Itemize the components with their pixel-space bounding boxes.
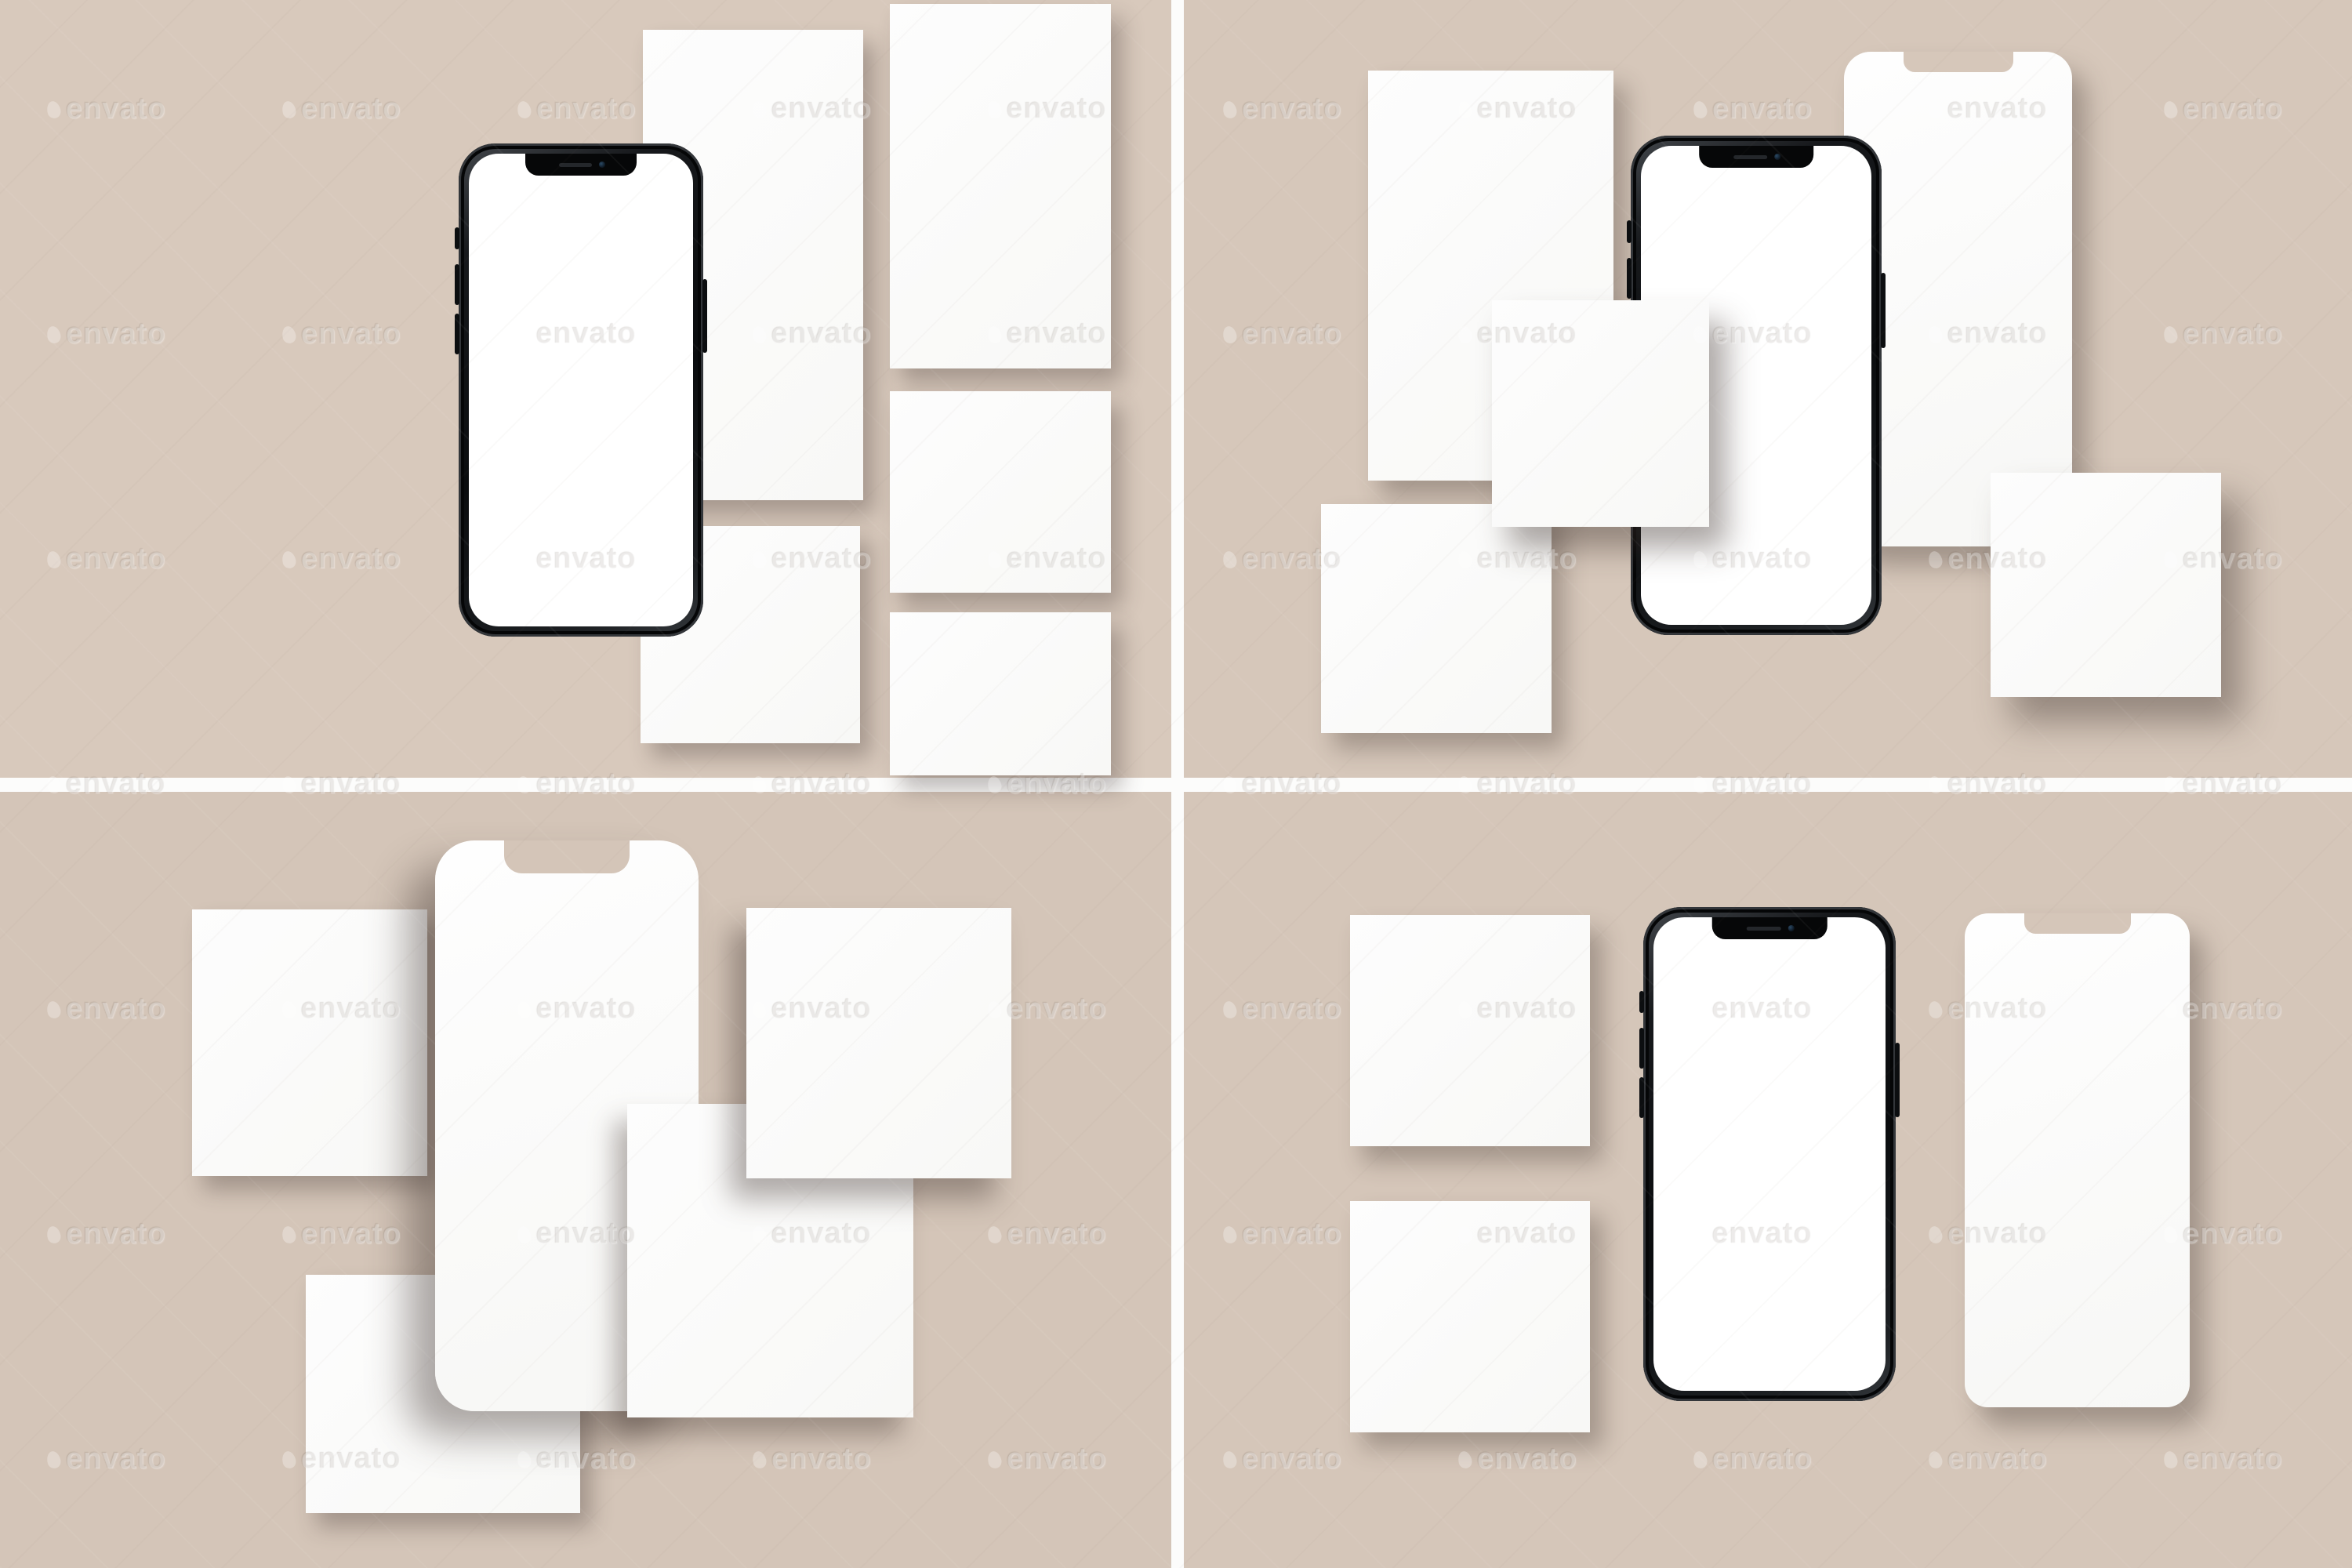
mute-button <box>1627 220 1632 243</box>
phone-notch <box>525 154 637 176</box>
phone-screen <box>469 154 693 626</box>
vol_dn-button <box>1639 1077 1644 1118</box>
power-button <box>702 279 707 353</box>
blank-card-square <box>890 612 1111 775</box>
front-camera-dot <box>1774 154 1780 160</box>
blank-card-square <box>1492 300 1709 527</box>
screen-card-notch-cutout <box>2024 913 2131 934</box>
blank-card-square <box>746 908 1011 1178</box>
screen-card-notch-cutout <box>504 840 630 873</box>
blank-card-square <box>1350 1201 1590 1432</box>
front-camera-dot <box>599 162 605 168</box>
speaker-slot <box>1733 155 1768 159</box>
iphone-mockup <box>1643 907 1896 1401</box>
blank-card-square <box>1350 915 1590 1146</box>
vol_up-button <box>455 264 459 305</box>
screen-card-notch-cutout <box>1904 52 2013 72</box>
front-camera-dot <box>1788 925 1794 931</box>
vol_up-button <box>1627 258 1632 299</box>
blank-card-square <box>1321 504 1552 733</box>
power-button <box>1881 273 1886 348</box>
vol_dn-button <box>455 314 459 354</box>
vol_up-button <box>1639 1028 1644 1069</box>
blank-card-tall <box>890 4 1111 368</box>
app-screen-card <box>1965 913 2190 1407</box>
mute-button <box>455 227 459 249</box>
blank-card-square <box>1991 473 2221 697</box>
phone-notch <box>1699 146 1813 168</box>
blank-card-square <box>192 909 427 1176</box>
power-button <box>1895 1043 1900 1117</box>
blank-card-square <box>890 391 1111 593</box>
iphone-mockup <box>459 143 703 637</box>
mockup-preview-grid: envatoenvatoenvatoenvatoenvatoenvatoenva… <box>0 0 2352 1568</box>
speaker-slot <box>1747 927 1781 931</box>
phone-notch <box>1712 917 1828 939</box>
phone-frame <box>459 143 703 637</box>
speaker-slot <box>559 163 593 167</box>
phone-frame <box>1643 907 1896 1401</box>
mute-button <box>1639 991 1644 1013</box>
phone-screen <box>1653 917 1886 1391</box>
